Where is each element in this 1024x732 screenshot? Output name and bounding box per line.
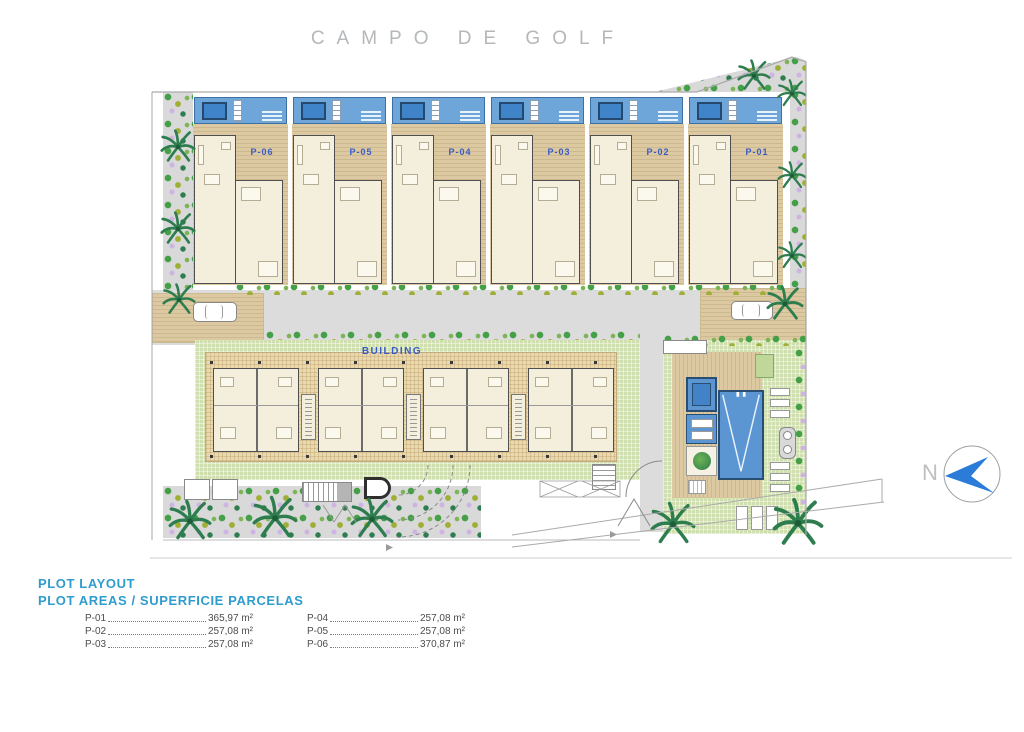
sofa — [535, 427, 551, 439]
storage-box — [184, 479, 210, 500]
column-row-top — [210, 361, 614, 364]
column-row-bottom — [210, 455, 614, 458]
roof-terrace — [392, 97, 485, 124]
unit-bedrooms — [334, 180, 382, 284]
legend-row: P-03 257,08 m² — [85, 637, 253, 650]
terrace-stairs — [728, 100, 737, 122]
apartment-cluster — [528, 368, 614, 452]
sun-lounger — [770, 462, 790, 470]
palm-tree-icon — [162, 282, 196, 316]
dot-leader — [330, 634, 418, 635]
plot-id: P-04 — [307, 613, 328, 624]
palm-tree-icon — [350, 496, 394, 540]
dining-table — [303, 174, 319, 185]
plot-unit-p01: P-01 — [688, 92, 783, 285]
terrace-loungers — [559, 111, 579, 121]
terrace-pool — [697, 102, 722, 120]
storage-box — [212, 479, 238, 500]
unit-interior — [689, 135, 731, 284]
palm-tree-icon — [777, 160, 807, 190]
bed — [383, 377, 397, 387]
dining-table — [600, 174, 616, 185]
unit-interior — [293, 135, 335, 284]
plot-id: P-06 — [307, 639, 328, 650]
bed — [593, 377, 607, 387]
plot-area: 257,08 m² — [420, 626, 465, 637]
plot-area: 257,08 m² — [208, 639, 253, 650]
terrace-stairs — [629, 100, 638, 122]
stairs — [305, 398, 312, 436]
palm-tree-icon — [160, 128, 196, 164]
lounger-platform — [686, 414, 717, 444]
bed — [430, 377, 444, 387]
partition — [319, 405, 403, 406]
partition — [529, 405, 613, 406]
stair-landing — [337, 483, 351, 501]
outdoor-kitchen — [779, 427, 796, 459]
plot-label: P-03 — [534, 147, 584, 157]
sun-lounger — [691, 419, 713, 428]
unit-interior — [194, 135, 236, 284]
roof-terrace — [590, 97, 683, 124]
car-left — [193, 302, 237, 322]
dining-table — [699, 174, 715, 185]
party-wall — [571, 369, 573, 451]
sun-lounger — [770, 484, 790, 492]
plot-id: P-03 — [85, 639, 106, 650]
site-plan-page: CAMPO DE GOLF P-06 — [0, 0, 1024, 732]
palm-tree-icon — [777, 78, 807, 108]
terrace-loungers — [757, 111, 777, 121]
sofa — [396, 145, 402, 165]
sofa — [594, 145, 600, 165]
plot-label: P-04 — [435, 147, 485, 157]
sofa — [495, 145, 501, 165]
plot-area: 370,87 m² — [420, 639, 465, 650]
stair-core — [511, 394, 526, 440]
dot-leader — [108, 647, 206, 648]
bed — [357, 261, 377, 277]
bed — [753, 261, 773, 277]
stairs — [515, 398, 522, 436]
page-title: CAMPO DE GOLF — [0, 28, 936, 50]
roof-terrace — [689, 97, 782, 124]
swimming-pool — [718, 390, 764, 480]
unit-bedrooms — [631, 180, 679, 284]
sun-lounger — [691, 431, 713, 440]
plot-unit-p02: P-02 — [589, 92, 684, 285]
dot-leader — [330, 647, 418, 648]
terrace-loungers — [361, 111, 381, 121]
bed — [340, 187, 360, 201]
legend-row: P-05 257,08 m² — [307, 624, 465, 637]
legend-row: P-02 257,08 m² — [85, 624, 253, 637]
stair-core — [301, 394, 316, 440]
terrace-stairs — [530, 100, 539, 122]
terrace-stairs — [233, 100, 242, 122]
bush — [693, 452, 711, 470]
terrace-stairs — [332, 100, 341, 122]
unit-interior — [491, 135, 533, 284]
sun-lounger — [770, 388, 790, 396]
plot-area: 257,08 m² — [420, 613, 465, 624]
legend-title: PLOT LAYOUT — [38, 576, 135, 591]
sun-lounger — [751, 506, 763, 530]
palm-tree-icon — [160, 210, 196, 246]
sofa — [198, 145, 204, 165]
bed — [241, 187, 261, 201]
bed — [736, 187, 756, 201]
bed — [535, 377, 549, 387]
tv-unit — [320, 142, 330, 150]
terrace-loungers — [460, 111, 480, 121]
dining-table — [402, 174, 418, 185]
sofa — [430, 427, 446, 439]
roof-terrace — [491, 97, 584, 124]
planter — [755, 354, 774, 378]
palm-tree-icon — [777, 240, 807, 270]
sofa — [325, 427, 341, 439]
tv-unit — [716, 142, 726, 150]
partition — [424, 405, 508, 406]
tv-unit — [617, 142, 627, 150]
sofa — [591, 427, 607, 439]
apartment-cluster — [213, 368, 299, 452]
car-windows — [205, 305, 224, 319]
roof-terrace — [293, 97, 386, 124]
bed — [538, 187, 558, 201]
plot-id: P-01 — [85, 613, 106, 624]
terrace-pool — [202, 102, 227, 120]
dining-table — [501, 174, 517, 185]
party-wall — [256, 369, 258, 451]
plot-area: 365,97 m² — [208, 613, 253, 624]
sun-lounger — [770, 399, 790, 407]
legend-row: P-06 370,87 m² — [307, 637, 465, 650]
palm-tree-icon — [772, 496, 824, 548]
sofa — [486, 427, 502, 439]
sofa — [220, 427, 236, 439]
plot-unit-p06: P-06 — [193, 92, 288, 285]
tv-unit — [419, 142, 429, 150]
car-windows — [742, 304, 760, 317]
stair-core — [406, 394, 421, 440]
sofa — [381, 427, 397, 439]
legend-subtitle: PLOT AREAS / SUPERFICIE PARCELAS — [38, 593, 304, 608]
unit-bedrooms — [235, 180, 283, 284]
tv-unit — [518, 142, 528, 150]
sink — [783, 431, 792, 440]
unit-interior — [590, 135, 632, 284]
plot-id: P-05 — [307, 626, 328, 637]
partition — [214, 405, 298, 406]
unit-bedrooms — [433, 180, 481, 284]
bed — [654, 261, 674, 277]
sofa — [693, 145, 699, 165]
tv-unit — [221, 142, 231, 150]
plot-unit-p05: P-05 — [292, 92, 387, 285]
terrace-pool — [400, 102, 425, 120]
terrace-loungers — [658, 111, 678, 121]
plot-unit-p03: P-03 — [490, 92, 585, 285]
legend-column-2: P-04 257,08 m² P-05 257,08 m² P-06 370,8… — [307, 611, 465, 650]
legend-row: P-01 365,97 m² — [85, 611, 253, 624]
unit-interior — [392, 135, 434, 284]
bed — [555, 261, 575, 277]
terrace-loungers — [262, 111, 282, 121]
north-arrow-icon — [942, 444, 1002, 504]
bed — [325, 377, 339, 387]
bed — [637, 187, 657, 201]
terrace-pool — [598, 102, 623, 120]
palm-tree-icon — [737, 58, 771, 92]
legend-column-1: P-01 365,97 m² P-02 257,08 m² P-03 257,0… — [85, 611, 253, 650]
unit-bedrooms — [532, 180, 580, 284]
spa-water — [692, 383, 711, 406]
dot-leader — [108, 621, 206, 622]
palm-tree-icon — [168, 498, 212, 542]
unit-bedrooms — [730, 180, 778, 284]
plot-area: 257,08 m² — [208, 626, 253, 637]
palm-tree-icon — [252, 494, 298, 540]
bed — [258, 261, 278, 277]
bed — [278, 377, 292, 387]
sun-lounger — [770, 410, 790, 418]
legend-row: P-04 257,08 m² — [307, 611, 465, 624]
plot-label: P-02 — [633, 147, 683, 157]
dot-leader — [108, 634, 206, 635]
bed — [488, 377, 502, 387]
plot-label: P-06 — [237, 147, 287, 157]
plot-label: P-05 — [336, 147, 386, 157]
bed — [456, 261, 476, 277]
roof-terrace — [194, 97, 287, 124]
party-wall — [466, 369, 468, 451]
sun-lounger — [770, 473, 790, 481]
pool-hedge-right — [794, 348, 806, 508]
entrance-stairs — [592, 464, 616, 490]
spa-pool — [686, 377, 717, 412]
apartment-cluster — [423, 368, 509, 452]
bed — [439, 187, 459, 201]
sofa — [276, 427, 292, 439]
pool-steps — [688, 480, 706, 494]
burner — [783, 445, 792, 454]
building-label: BUILDING — [330, 346, 454, 357]
sofa — [297, 145, 303, 165]
pool-canopy — [663, 340, 707, 354]
party-wall — [361, 369, 363, 451]
terrace-pool — [499, 102, 524, 120]
dot-leader — [330, 621, 418, 622]
plot-label: P-01 — [732, 147, 782, 157]
pool-depth-lines — [720, 392, 762, 478]
exterior-stairs — [302, 482, 352, 502]
plot-id: P-02 — [85, 626, 106, 637]
apartment-cluster — [318, 368, 404, 452]
palm-tree-icon — [650, 500, 696, 546]
plot-unit-p04: P-04 — [391, 92, 486, 285]
bed — [220, 377, 234, 387]
dining-table — [204, 174, 220, 185]
stairs — [410, 398, 417, 436]
terrace-stairs — [431, 100, 440, 122]
north-label: N — [922, 460, 938, 486]
palm-tree-icon — [766, 284, 804, 322]
sun-lounger — [736, 506, 748, 530]
deck-planter — [686, 446, 717, 476]
terrace-pool — [301, 102, 326, 120]
